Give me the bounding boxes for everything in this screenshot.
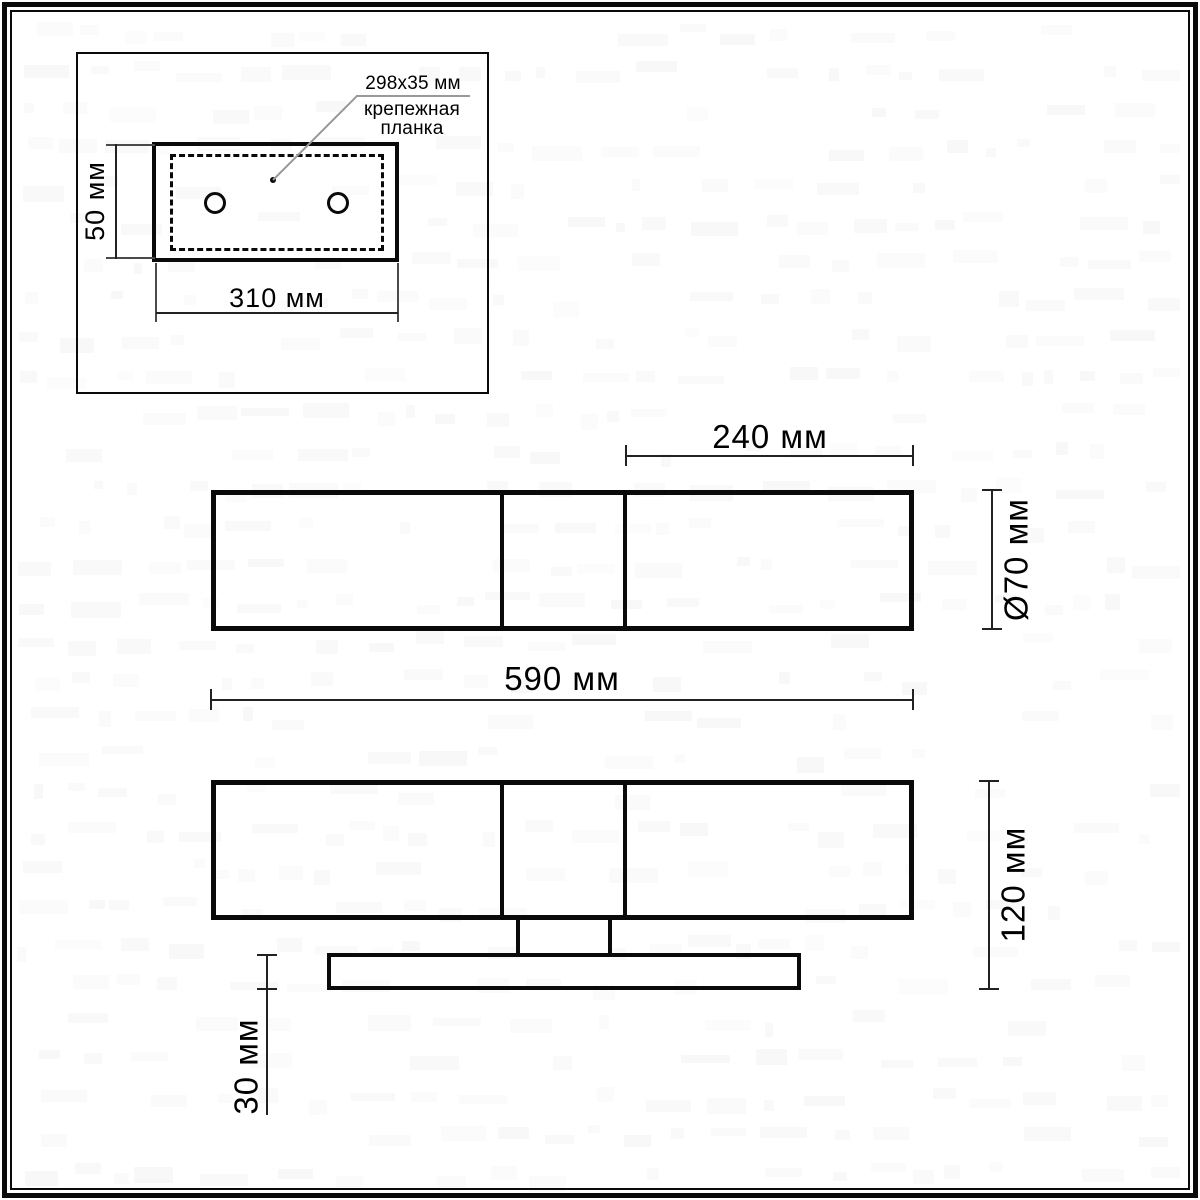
dim-50-label: 50 мм xyxy=(81,101,113,301)
callout-plate-name-line2: планка xyxy=(332,119,492,139)
stem-wall-left xyxy=(516,918,520,955)
dim-590-tick-right xyxy=(912,689,914,710)
side-view-divider-left xyxy=(500,780,504,920)
dim-310-label: 310 мм xyxy=(197,284,357,312)
dim-70-label: Ø70 мм xyxy=(1000,460,1033,660)
dim-240-tick-left xyxy=(625,445,627,466)
front-view-divider-right xyxy=(623,490,627,631)
callout-plate-size-label: 298x35 мм xyxy=(343,74,483,94)
base-plate xyxy=(327,953,801,990)
dim-590-label: 590 мм xyxy=(462,662,662,697)
dim-240-label: 240 мм xyxy=(690,420,850,455)
side-view-body xyxy=(211,780,914,920)
stem-wall-right xyxy=(608,918,612,955)
dim-120-line xyxy=(988,781,990,990)
dim-120-label: 120 мм xyxy=(997,785,1030,985)
dimension-drawing-page: 298x35 мм крепежная планка 50 мм 310 мм … xyxy=(0,0,1200,1200)
dim-120-tick-bottom xyxy=(979,988,999,990)
front-view-body xyxy=(211,490,914,631)
dim-50-ext-top xyxy=(106,144,155,146)
callout-plate-name-line1: крепежная xyxy=(332,100,492,120)
dim-240-line xyxy=(626,455,914,457)
dim-50-ext-bottom xyxy=(106,257,155,259)
front-view-divider-left xyxy=(500,490,504,631)
dim-50-line xyxy=(115,144,117,259)
drawing-layer: 298x35 мм крепежная планка 50 мм 310 мм … xyxy=(0,0,1200,1200)
dim-120-tick-top xyxy=(979,780,999,782)
side-view-divider-right xyxy=(623,780,627,920)
mounting-hole-right xyxy=(327,192,349,214)
leader-underline xyxy=(356,95,470,97)
dim-30-label: 30 мм xyxy=(230,967,263,1167)
dim-240-tick-right xyxy=(912,445,914,466)
dim-70-line xyxy=(991,490,993,630)
dim-30-tick-top xyxy=(257,954,277,956)
dim-590-line xyxy=(211,699,914,701)
dim-590-tick-left xyxy=(210,689,212,710)
mounting-plate-dashed-contour xyxy=(170,154,384,251)
dim-30-line xyxy=(266,955,268,1115)
mounting-hole-left xyxy=(204,192,226,214)
